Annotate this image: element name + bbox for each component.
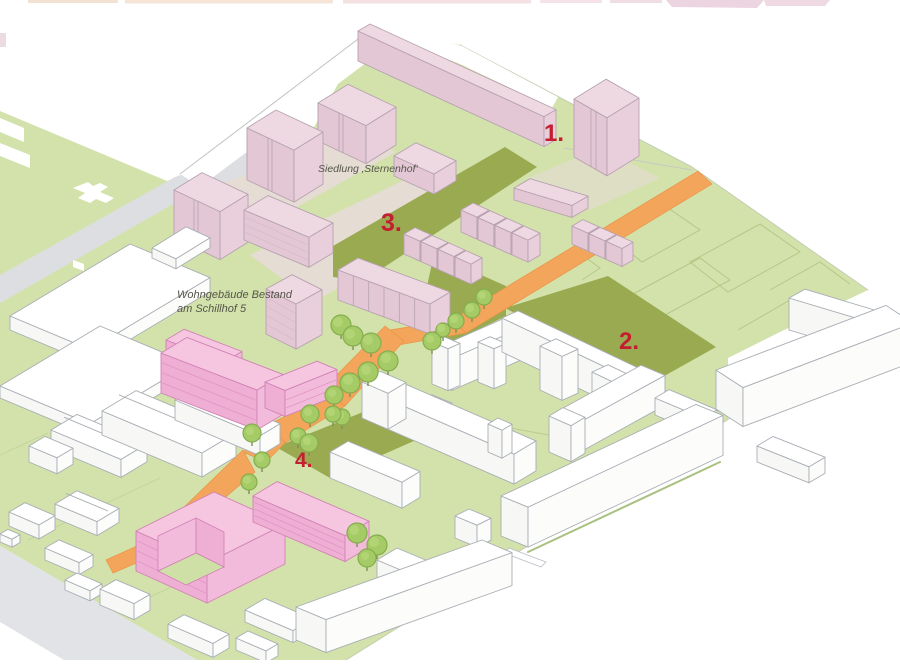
svg-text:4.: 4. (295, 449, 313, 472)
svg-text:am Schillhof 5: am Schillhof 5 (177, 303, 247, 315)
svg-text:Siedlung ‚Sternenhof‘: Siedlung ‚Sternenhof‘ (318, 163, 418, 175)
svg-text:3.: 3. (381, 209, 402, 237)
svg-text:1.: 1. (544, 120, 564, 147)
svg-text:Wohngebäude Bestand: Wohngebäude Bestand (177, 289, 293, 301)
svg-text:2.: 2. (619, 328, 639, 355)
